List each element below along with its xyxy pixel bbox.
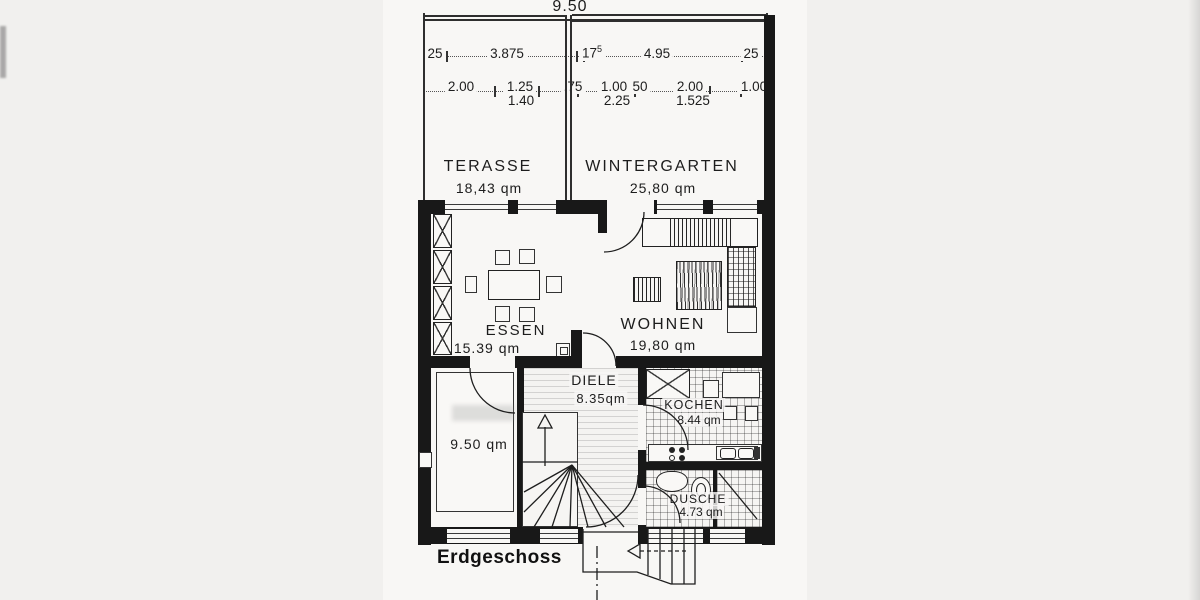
dim-wg-offset-sup: 5 [597, 44, 602, 54]
dimension-tick [446, 51, 448, 62]
staircase [522, 412, 578, 527]
room-label-wintergarten: WINTERGARTEN [585, 158, 738, 176]
dining-table [488, 270, 540, 300]
dim-1525: 1.525 [673, 94, 713, 108]
window [657, 200, 703, 214]
room-label-terasse: TERASSE [444, 158, 533, 176]
dim-terrace-offset: 25 [424, 47, 445, 61]
dim-terrace-width: 3.875 [487, 47, 527, 61]
dimension-tick [494, 86, 496, 97]
terrace-wg-divider [570, 15, 572, 212]
wall-kochen-dusche [638, 462, 775, 470]
chair [495, 250, 510, 265]
dim-225: 2.25 [601, 94, 633, 108]
window [648, 529, 703, 543]
dimension-tick [576, 51, 578, 62]
chair [519, 307, 535, 322]
room-area-essen: 15.39 qm [454, 340, 520, 356]
house-west-wall [418, 200, 431, 545]
room-label-wohnen: WOHNEN [621, 316, 706, 334]
room-area-diele: 8.35qm [574, 391, 627, 406]
chair [546, 276, 562, 293]
dim-140: 1.40 [505, 94, 537, 108]
dim-200a: 2.00 [445, 80, 477, 94]
cupboard-cell [433, 322, 452, 355]
room-area-kochen: 8.44 qm [675, 413, 722, 427]
armchair [633, 277, 661, 302]
stove-burner [669, 447, 675, 453]
radiator-inner [560, 347, 568, 355]
scan-edge-shade [1188, 0, 1200, 600]
stove-burner [679, 447, 685, 453]
kitchen-unit [703, 380, 719, 398]
dim-wg-offset-base: 17 [582, 46, 597, 61]
window [518, 200, 556, 214]
terrace-top-wall [423, 15, 566, 17]
room-area-wohnen: 19,80 qm [630, 337, 696, 353]
dim-wg-offset: 175 [579, 45, 605, 61]
terrace-wg-divider [565, 15, 567, 212]
dim-50: 50 [629, 80, 650, 94]
window [445, 200, 508, 214]
stove-burner [679, 455, 685, 461]
room-area-zimmer: 9.50 qm [450, 436, 508, 452]
room-area-wintergarten: 25,80 qm [630, 180, 696, 196]
room-area-terasse: 18,43 qm [456, 180, 522, 196]
scan-edge-artifact [0, 26, 6, 78]
dim-wg-width: 4.95 [641, 47, 673, 61]
door-opening-wohnen [582, 356, 616, 368]
cupboard-cell [433, 214, 452, 248]
sofa-side [727, 247, 756, 307]
door-opening-kochen [638, 405, 646, 450]
terrace-left-wall [423, 15, 425, 202]
chair [519, 249, 535, 264]
sofa-cushions [670, 219, 733, 246]
door-opening-dusche [638, 488, 646, 525]
chair [495, 306, 510, 322]
floorplan-scan: 9.50 25 3.875 175 4.95 25 2.00 1.25 .75 … [0, 0, 1200, 600]
dimension-tick [538, 86, 540, 97]
sink-basin [738, 448, 754, 459]
rug [676, 261, 722, 310]
chair [465, 276, 477, 293]
washbasin [656, 471, 688, 492]
floor-title: Erdgeschoss [437, 547, 562, 569]
room-label-essen: ESSEN [486, 322, 547, 339]
sink-basin [720, 448, 736, 459]
stove-burner [669, 455, 675, 461]
cupboard-cell [433, 250, 452, 284]
window [447, 529, 510, 543]
faded-room-label [452, 405, 514, 421]
room-label-dusche: DUSCHE [668, 492, 729, 506]
room-area-dusche: 4.73 qm [677, 505, 724, 519]
dim-wg-right-offset: 25 [740, 47, 761, 61]
window [710, 529, 745, 543]
room-label-kochen: KOCHEN [662, 398, 725, 412]
window [713, 200, 757, 214]
room-label-diele: DIELE [569, 372, 618, 388]
sink-drainer [754, 447, 760, 459]
window [540, 529, 578, 543]
house-east-wall [762, 205, 775, 545]
door-opening-zimmer [470, 356, 515, 368]
door-leaf-wintergarten [598, 200, 607, 233]
kitchen-unit [745, 406, 758, 421]
wintergarten-right-wall [764, 15, 775, 211]
side-table [727, 307, 757, 333]
entrance-door-opening [583, 527, 638, 544]
cupboard-cell [433, 286, 452, 320]
fridge [722, 372, 760, 398]
wall-niche [419, 452, 432, 468]
kitchen-cupboard [646, 369, 690, 399]
wintergarten-glazing-band [572, 14, 766, 22]
